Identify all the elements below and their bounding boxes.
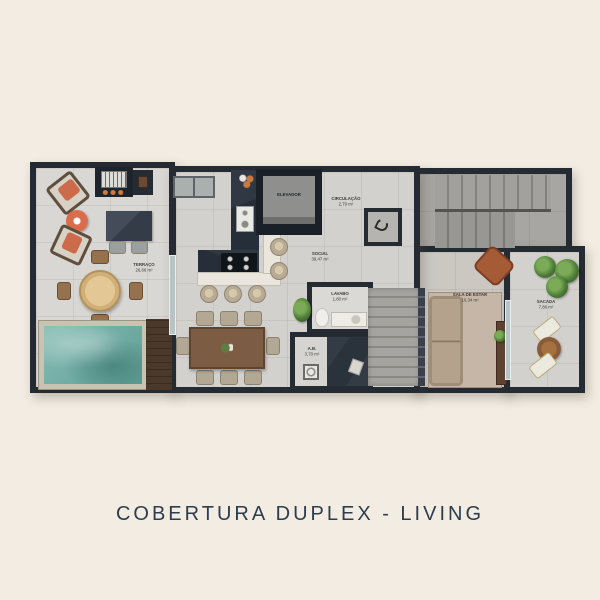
bar-stool (248, 285, 266, 303)
grill-skewers (102, 190, 124, 195)
lavabo-vanity (331, 312, 367, 327)
balcony-plant (534, 256, 556, 278)
room-label-sala: SALA DE ESTAR 10,34 m² (450, 293, 490, 304)
room-label-elevador: ELEVADOR (270, 193, 307, 198)
high-chair (109, 241, 126, 254)
bar-stool (200, 285, 218, 303)
high-table (106, 211, 152, 241)
pool (44, 326, 142, 384)
ab-area: 3,70 m² (305, 353, 320, 358)
high-chair (131, 241, 148, 254)
sala-area: 10,34 m² (461, 299, 478, 304)
dining-chair (244, 311, 262, 326)
dining-chair (244, 370, 262, 385)
terraco-area: 26,66 m² (135, 269, 152, 274)
sliding-glass-door (505, 300, 511, 380)
dining-chair (196, 370, 214, 385)
dining-chair (196, 311, 214, 326)
dining-chair (220, 370, 238, 385)
sofa (429, 296, 463, 386)
room-label-sacada: SACADA 7,86 m² (526, 300, 566, 311)
elevator-label: ELEVADOR (277, 193, 301, 198)
room-label-lavabo: LAVABO 1,80 m² (321, 292, 358, 303)
cooktop (221, 253, 257, 273)
potted-plant (293, 298, 311, 322)
dining-chair (176, 337, 190, 355)
sliding-glass-door (169, 255, 176, 335)
internal-stairs (368, 288, 420, 386)
kitchen-sink-oven (236, 206, 254, 232)
terrace-chair (91, 250, 109, 264)
toilet (315, 308, 329, 327)
stairs-lower-flight (435, 212, 515, 248)
floor-plan-scene: ELEVADOR (0, 0, 600, 600)
bar-stool (270, 238, 288, 256)
room-label-terraco: TERRAÇO 26,66 m² (124, 263, 164, 274)
washing-machine (303, 364, 319, 380)
dining-chair (220, 311, 238, 326)
stair-railing (418, 288, 425, 386)
terrace-chair (129, 282, 143, 300)
bar-stool (270, 262, 288, 280)
grill-grate (101, 171, 127, 188)
round-dining-table (79, 270, 121, 312)
elevator-door (263, 217, 315, 224)
room-label-social: SOCIAL 39,47 m² (300, 252, 340, 263)
refrigerator-door-split (193, 177, 195, 197)
stairs-upper-flight (435, 175, 551, 211)
table-centerpiece (221, 343, 233, 353)
plan-title: COBERTURA DUPLEX - LIVING (0, 503, 600, 526)
terrace-sink (138, 176, 148, 188)
sacada-area: 7,86 m² (539, 306, 554, 311)
terrace-chair (57, 282, 71, 300)
balcony-plant (546, 276, 568, 298)
counter-decor-bowls (238, 174, 254, 188)
lavabo-area: 1,80 m² (333, 298, 348, 303)
room-label-ab: A.B. 3,70 m² (298, 347, 327, 358)
room-label-circulacao: CIRCULAÇÃO 2,79 m² (326, 197, 366, 208)
bar-stool (224, 285, 242, 303)
island-counter-bottom (197, 272, 281, 286)
dining-chair (266, 337, 280, 355)
social-area: 39,47 m² (311, 258, 328, 263)
circulacao-area: 2,79 m² (339, 203, 354, 208)
